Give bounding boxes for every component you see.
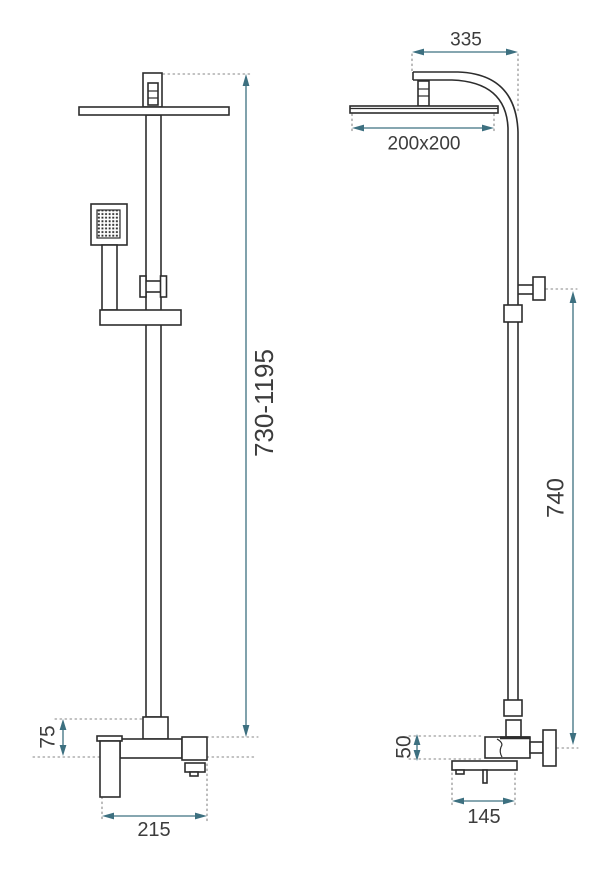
arrowhead-left-icon — [412, 49, 424, 56]
rain-head-side — [350, 106, 498, 113]
mixer-lever-side — [543, 730, 556, 766]
arrowhead-down-icon — [243, 725, 250, 737]
mixer-outlet-tip — [190, 772, 198, 776]
pipe-joint-lower — [504, 700, 522, 716]
dim-mixer-width: 215 — [102, 813, 207, 841]
arrowhead-right-icon — [503, 798, 515, 805]
spout-pin — [483, 770, 487, 783]
dim-mixer-width-label: 215 — [137, 819, 170, 841]
slider-flange-right — [161, 276, 167, 297]
mixer-handle-stem — [530, 742, 543, 753]
arrowhead-up-icon — [570, 291, 577, 303]
mixer-spout-side — [452, 761, 517, 770]
front-view: 730-1195 75 215 — [33, 73, 279, 841]
knob-body — [533, 277, 545, 300]
head-connector-side — [418, 81, 429, 106]
dim-riser-height: 740 — [543, 291, 577, 745]
arrowhead-right-icon — [482, 125, 494, 132]
arrowhead-right-icon — [506, 49, 518, 56]
dim-height-range: 730-1195 — [243, 74, 279, 737]
arrowhead-down-icon — [60, 745, 67, 756]
arrowhead-left-icon — [352, 125, 364, 132]
diverter-knob — [518, 277, 545, 300]
spout-nub — [456, 770, 464, 774]
hand-shower-spray-face — [97, 210, 120, 238]
shower-set-drawing: 730-1195 75 215 — [0, 0, 601, 873]
mixer-lever-front — [100, 741, 120, 797]
dim-arm-reach-label: 335 — [450, 30, 482, 51]
dim-mixer-depth: 145 — [452, 798, 515, 828]
dim-mixer-offset-side-label: 50 — [393, 735, 416, 758]
side-view: 335 200x200 740 50 145 — [350, 30, 578, 829]
dim-head-size-label: 200x200 — [388, 134, 461, 155]
mixer-body-side — [485, 737, 530, 758]
dim-riser-height-label: 740 — [543, 478, 570, 518]
pipe-joint-upper — [504, 305, 522, 322]
mixer-outlet-front — [185, 763, 205, 772]
dim-head-size: 200x200 — [352, 125, 494, 155]
arm-outer-edge — [413, 72, 518, 700]
dim-mixer-offset-front: 75 — [37, 719, 67, 756]
shower-arm-side — [413, 72, 518, 700]
arrowhead-right-icon — [195, 813, 207, 820]
mixer-connector-side — [506, 720, 521, 737]
mixer-side — [452, 730, 556, 783]
arrowhead-up-icon — [60, 719, 67, 730]
arrowhead-down-icon — [570, 733, 577, 745]
head-connector-front — [148, 83, 158, 105]
dim-mixer-offset-side: 50 — [393, 734, 421, 761]
technical-drawing-canvas: 730-1195 75 215 — [0, 0, 601, 873]
arrowhead-left-icon — [452, 798, 464, 805]
dim-mixer-depth-label: 145 — [467, 806, 500, 828]
dim-arm-reach: 335 — [412, 30, 518, 56]
hand-shower-handle — [102, 245, 117, 310]
arm-inner-edge — [413, 80, 508, 700]
mixer-valve-block — [182, 737, 207, 760]
arrowhead-up-icon — [243, 74, 250, 86]
mixer-connector-front — [143, 717, 168, 739]
slider-flange-left — [140, 276, 146, 297]
soap-shelf — [100, 310, 181, 325]
riser-pipe-front — [146, 115, 161, 717]
dim-height-range-label: 730-1195 — [249, 349, 279, 457]
mixer-body-front — [120, 739, 182, 758]
arrowhead-left-icon — [102, 813, 114, 820]
dim-mixer-offset-front-label: 75 — [37, 725, 60, 748]
rain-head-front — [79, 107, 229, 115]
